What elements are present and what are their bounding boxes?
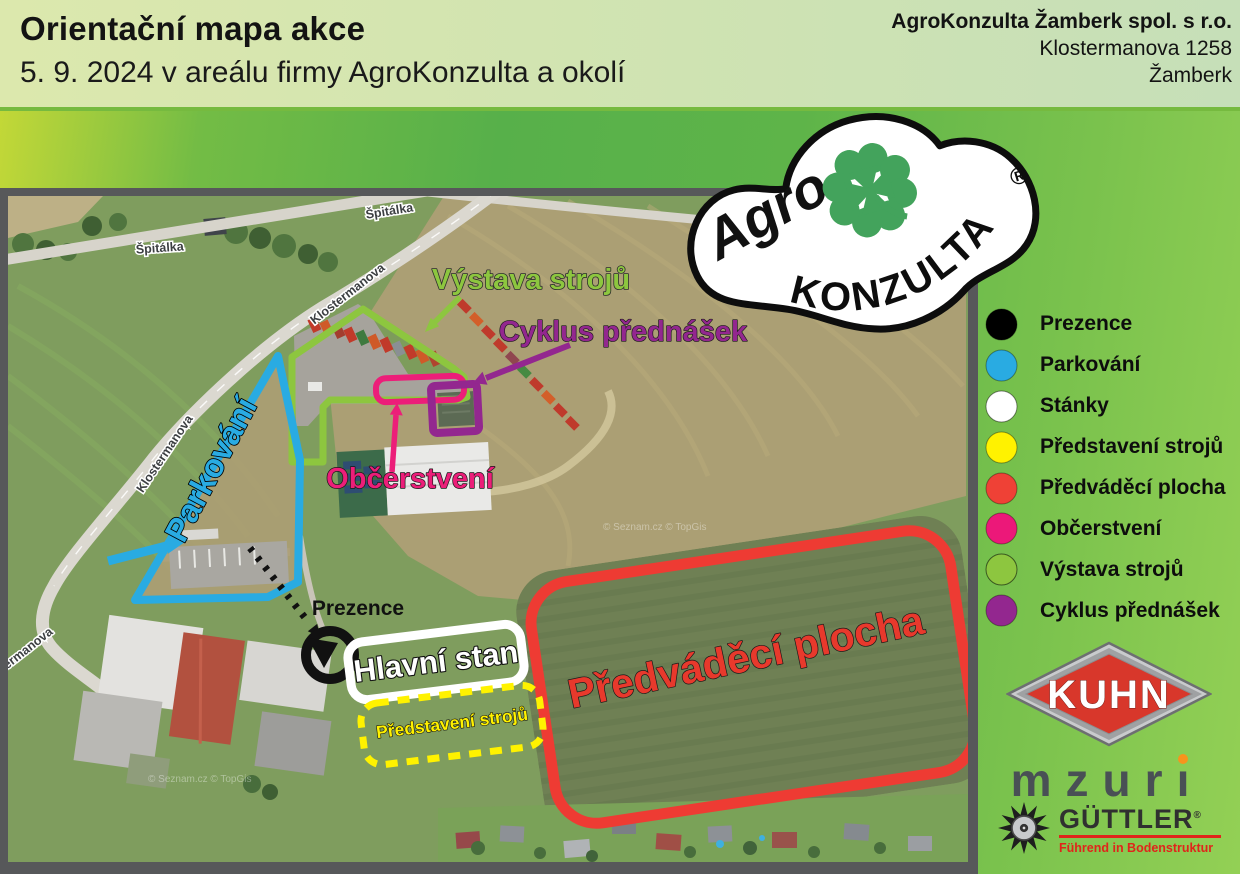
legend-label: Výstava strojů: [1040, 558, 1184, 582]
kuhn-logo-text: KUHN: [1047, 673, 1171, 717]
legend-item-stanky: Stánky: [985, 386, 1226, 427]
page-title: Orientační mapa akce: [20, 10, 365, 48]
legend-dot-predvadeci-plocha: [985, 472, 1018, 505]
header: Orientační mapa akce 5. 9. 2024 v areálu…: [0, 0, 1240, 111]
map-watermark: © Seznam.cz © TopGis: [148, 774, 251, 785]
company-city: Žamberk: [891, 62, 1232, 89]
legend: Prezence Parkování Stánky Představení st…: [985, 304, 1226, 631]
mzuri-i-dot: [1178, 754, 1188, 764]
legend-label: Představení strojů: [1040, 435, 1223, 459]
legend-item-parkovani: Parkování: [985, 345, 1226, 386]
guttler-registered-mark: ®: [1194, 810, 1202, 821]
legend-label: Občerstvení: [1040, 517, 1161, 541]
company-block: AgroKonzulta Žamberk spol. s r.o. Kloste…: [891, 8, 1232, 89]
event-map-poster: Orientační mapa akce 5. 9. 2024 v areálu…: [0, 0, 1240, 874]
legend-item-predstaveni-stroju: Představení strojů: [985, 427, 1226, 468]
guttler-logo: GÜTTLER® Führend in Bodenstruktur: [997, 801, 1233, 855]
legend-dot-parkovani: [985, 349, 1018, 382]
company-street: Klostermanova 1258: [891, 35, 1232, 62]
legend-label: Předváděcí plocha: [1040, 476, 1226, 500]
guttler-logo-text: GÜTTLER: [1059, 804, 1194, 834]
legend-dot-predstaveni-stroju: [985, 431, 1018, 464]
legend-dot-cyklus-prednasek: [985, 594, 1018, 627]
label-prezence: Prezence: [312, 597, 404, 620]
guttler-tagline: Führend in Bodenstruktur: [1059, 841, 1221, 855]
mzuri-logo: mzurı: [1000, 753, 1214, 807]
legend-item-vystava-stroju: Výstava strojů: [985, 549, 1226, 590]
agrokonzulta-logo: Agro KONZULTA ®: [678, 112, 1063, 347]
label-exhibition: Výstava strojů: [432, 264, 630, 296]
legend-dot-vystava-stroju: [985, 553, 1018, 586]
guttler-rule: [1059, 835, 1221, 838]
legend-label: Parkování: [1040, 353, 1140, 377]
kuhn-logo: KUHN: [1006, 641, 1212, 747]
legend-item-obcerstveni: Občerstvení: [985, 508, 1226, 549]
legend-dot-obcerstveni: [985, 512, 1018, 545]
label-refreshments: Občerstvení: [326, 463, 495, 495]
company-name: AgroKonzulta Žamberk spol. s r.o.: [891, 8, 1232, 35]
mzuri-logo-text: mzur: [1011, 754, 1177, 806]
guttler-text-block: GÜTTLER® Führend in Bodenstruktur: [1059, 801, 1221, 855]
legend-item-cyklus-prednasek: Cyklus přednášek: [985, 590, 1226, 631]
page-subtitle: 5. 9. 2024 v areálu firmy AgroKonzulta a…: [20, 56, 625, 90]
legend-label: Cyklus přednášek: [1040, 599, 1220, 623]
legend-label: Stánky: [1040, 394, 1109, 418]
legend-dot-stanky: [985, 390, 1018, 423]
guttler-roller-icon: [997, 801, 1051, 855]
map-watermark: © Seznam.cz © TopGis: [603, 522, 706, 533]
legend-item-predvadeci-plocha: Předváděcí plocha: [985, 468, 1226, 509]
